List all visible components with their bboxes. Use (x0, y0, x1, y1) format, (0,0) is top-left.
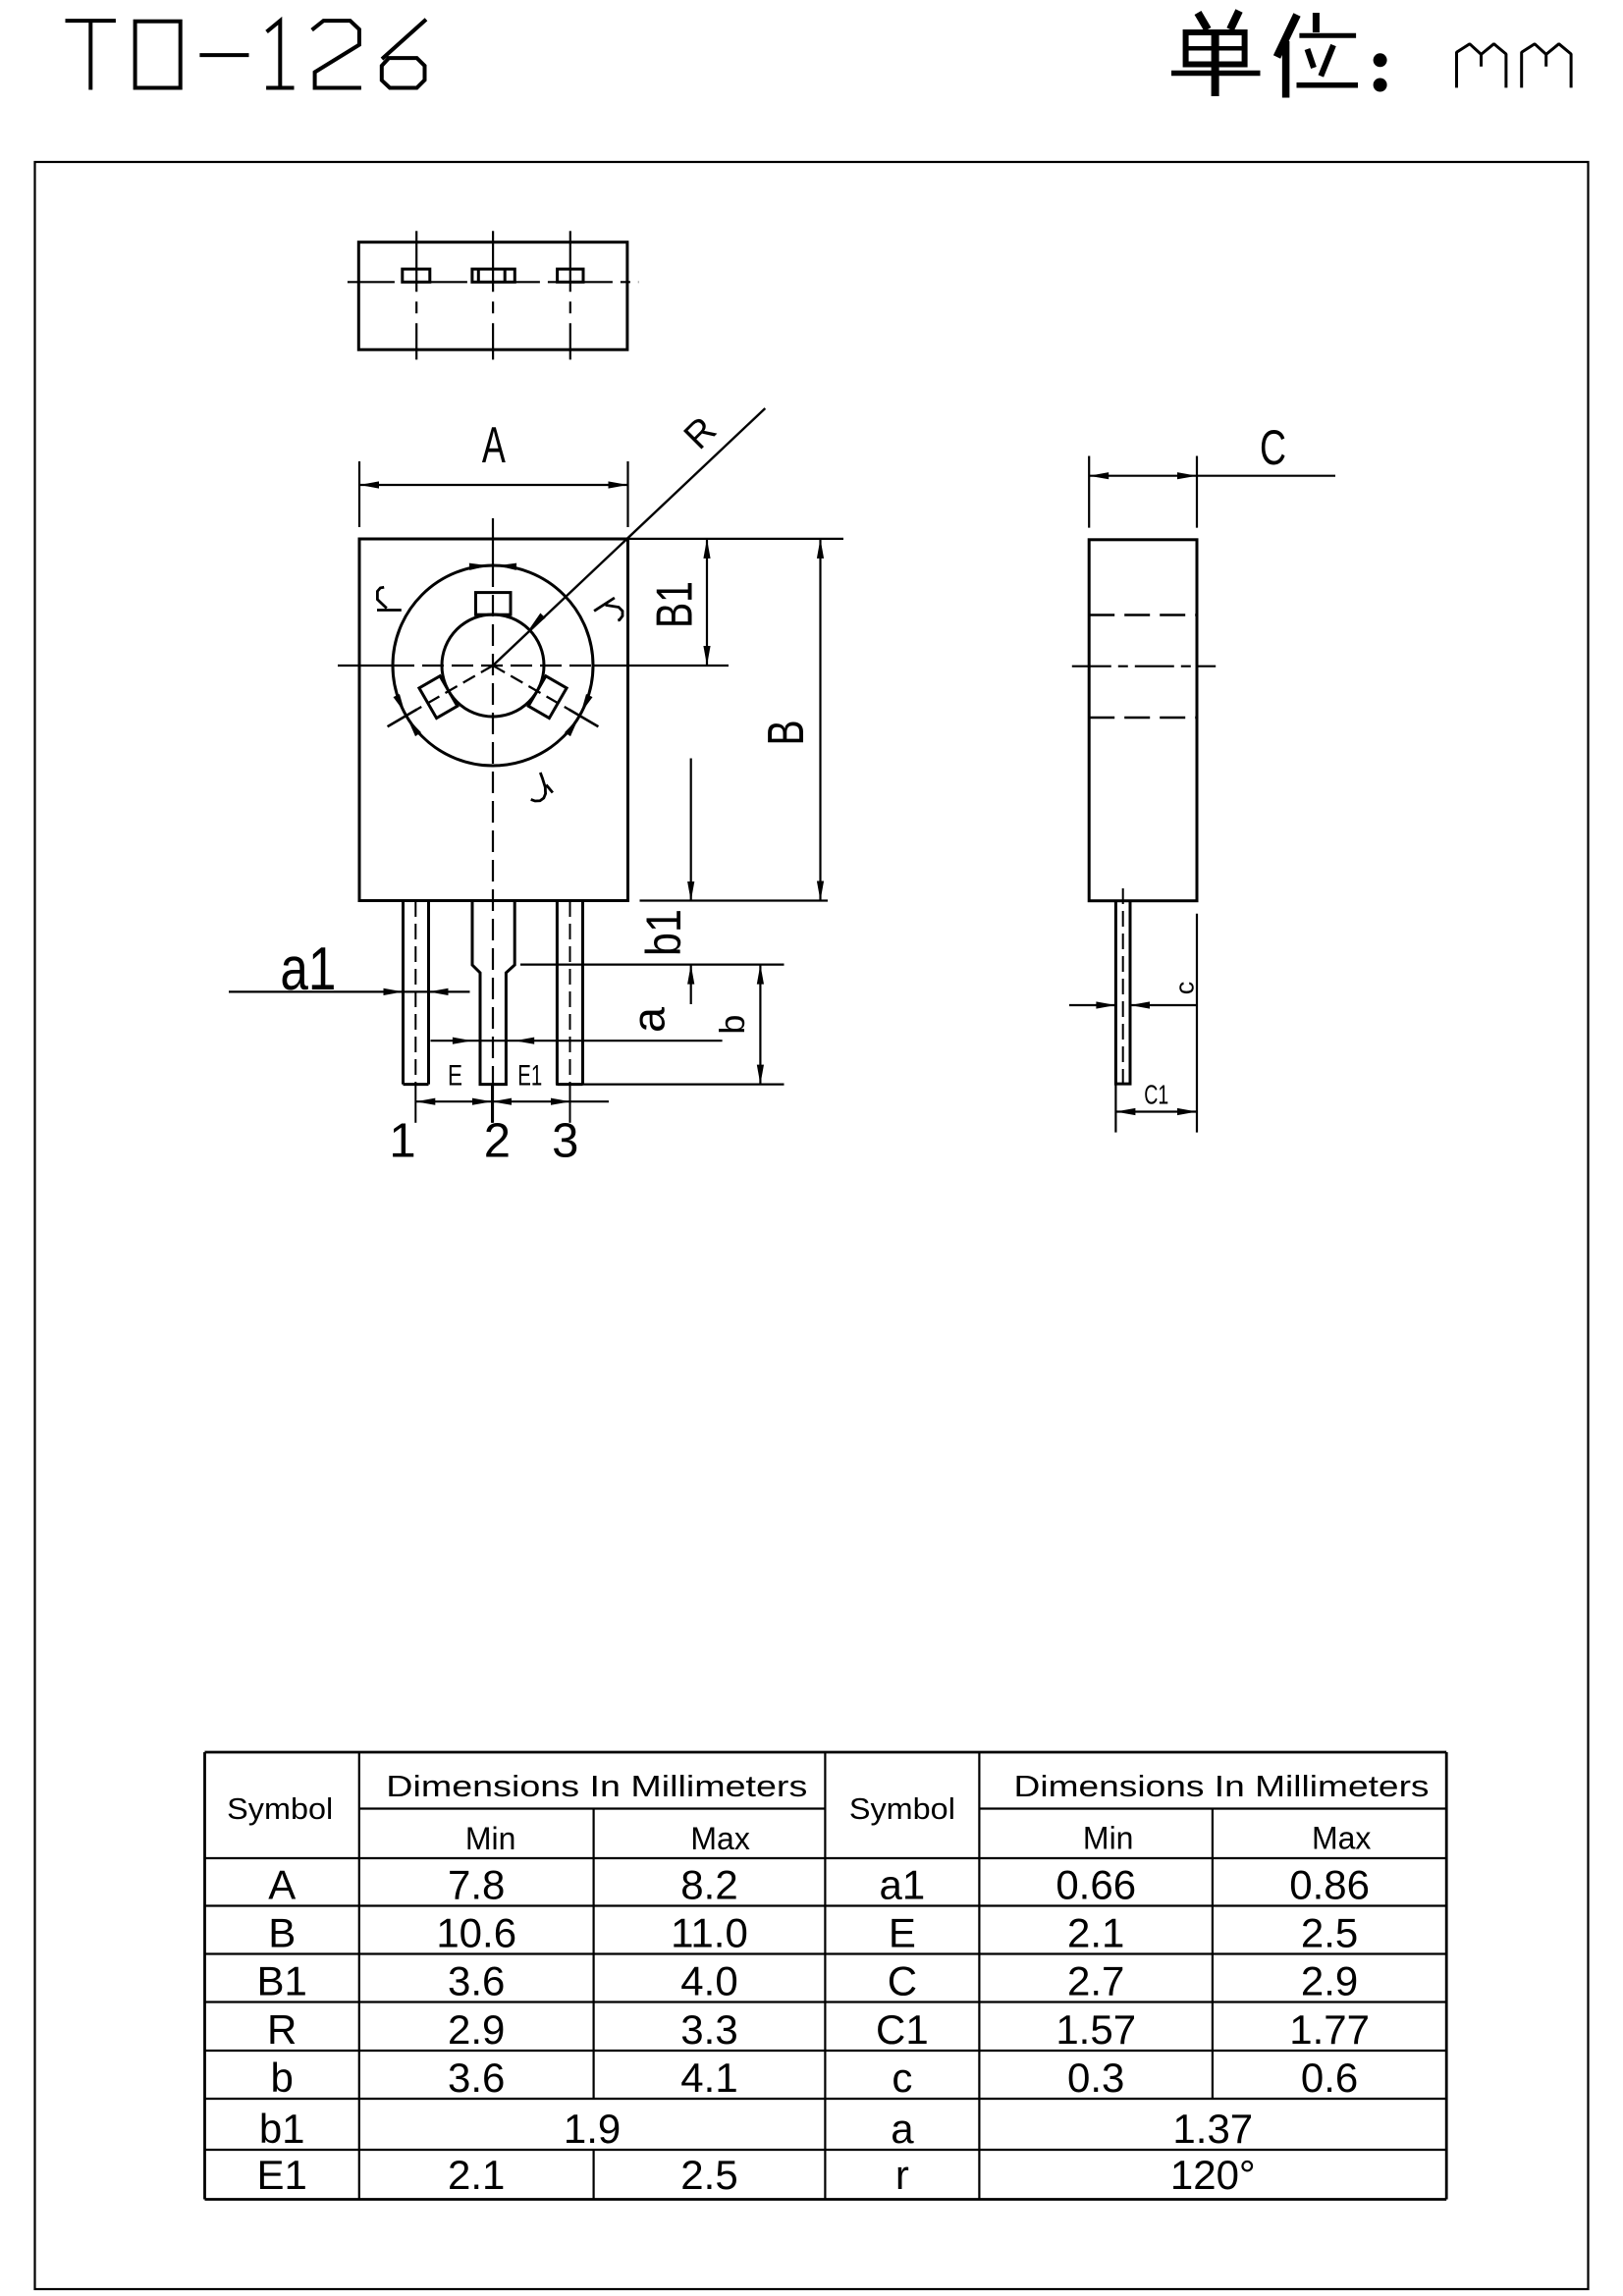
svg-text:1.9: 1.9 (564, 2106, 621, 2152)
svg-text:Min: Min (1083, 1821, 1134, 1856)
svg-text:0.3: 0.3 (1067, 2055, 1124, 2101)
svg-text:b: b (271, 2055, 294, 2101)
svg-text:3: 3 (552, 1114, 578, 1167)
svg-text:3.6: 3.6 (448, 1958, 505, 2004)
svg-text:Symbol: Symbol (849, 1791, 955, 1826)
svg-text:b1: b1 (636, 909, 691, 956)
svg-text:a: a (622, 1007, 674, 1033)
svg-text:2.7: 2.7 (1067, 1958, 1124, 2004)
svg-text:7.8: 7.8 (448, 1862, 505, 1908)
svg-text:A: A (268, 1862, 296, 1908)
svg-text:Min: Min (465, 1821, 516, 1856)
svg-text:2.5: 2.5 (1301, 1910, 1358, 1956)
svg-text:B: B (758, 721, 815, 746)
svg-text:R: R (267, 2006, 297, 2053)
svg-text:c: c (1170, 982, 1200, 995)
svg-text:Max: Max (690, 1821, 749, 1856)
svg-text:0.66: 0.66 (1055, 1862, 1136, 1908)
svg-text:2: 2 (484, 1114, 511, 1167)
svg-text:2.1: 2.1 (1067, 1910, 1124, 1956)
svg-text:b1: b1 (259, 2106, 305, 2152)
svg-text:R: R (676, 409, 725, 457)
svg-text:c: c (892, 2055, 912, 2101)
svg-text:B1: B1 (257, 1958, 307, 2004)
svg-text:8.2: 8.2 (680, 1862, 737, 1908)
svg-text:120°: 120° (1170, 2152, 1256, 2198)
svg-text:2.9: 2.9 (448, 2006, 505, 2053)
svg-text:C1: C1 (1144, 1080, 1168, 1110)
svg-text:1: 1 (389, 1114, 415, 1167)
svg-text:4.1: 4.1 (680, 2055, 737, 2101)
svg-text:A: A (482, 417, 506, 474)
svg-text:0.6: 0.6 (1301, 2055, 1358, 2101)
svg-text:a1: a1 (280, 935, 336, 1003)
svg-text:a: a (891, 2106, 914, 2152)
svg-text:C: C (888, 1958, 917, 2004)
svg-text:1.57: 1.57 (1055, 2006, 1136, 2053)
svg-text:E: E (448, 1059, 462, 1092)
svg-text:1.77: 1.77 (1289, 2006, 1370, 2053)
svg-text:E1: E1 (257, 2152, 307, 2198)
svg-text:2.9: 2.9 (1301, 1958, 1358, 2004)
svg-text:2.5: 2.5 (680, 2152, 737, 2198)
svg-text:r: r (895, 2152, 909, 2198)
svg-text:Dimensions In Millimeters: Dimensions In Millimeters (1014, 1769, 1430, 1803)
svg-text:a1: a1 (880, 1862, 926, 1908)
svg-text:B: B (268, 1910, 296, 1956)
svg-text:E: E (889, 1910, 916, 1956)
svg-text:10.6: 10.6 (436, 1910, 516, 1956)
svg-text:2.1: 2.1 (448, 2152, 505, 2198)
svg-text:4.0: 4.0 (680, 1958, 737, 2004)
svg-text:0.86: 0.86 (1289, 1862, 1370, 1908)
svg-text:11.0: 11.0 (671, 1910, 748, 1956)
svg-text:Dimensions In Millimeters: Dimensions In Millimeters (386, 1769, 807, 1803)
svg-text:E1: E1 (517, 1059, 542, 1092)
svg-text:b: b (712, 1015, 752, 1035)
svg-text:1.37: 1.37 (1172, 2106, 1253, 2152)
svg-text:3.6: 3.6 (448, 2055, 505, 2101)
svg-text:Symbol: Symbol (227, 1791, 333, 1826)
svg-text:3.3: 3.3 (680, 2006, 737, 2053)
svg-text:C: C (1260, 420, 1286, 475)
svg-text:C1: C1 (876, 2006, 929, 2053)
svg-text:Max: Max (1312, 1821, 1371, 1856)
svg-text:B1: B1 (647, 581, 704, 628)
